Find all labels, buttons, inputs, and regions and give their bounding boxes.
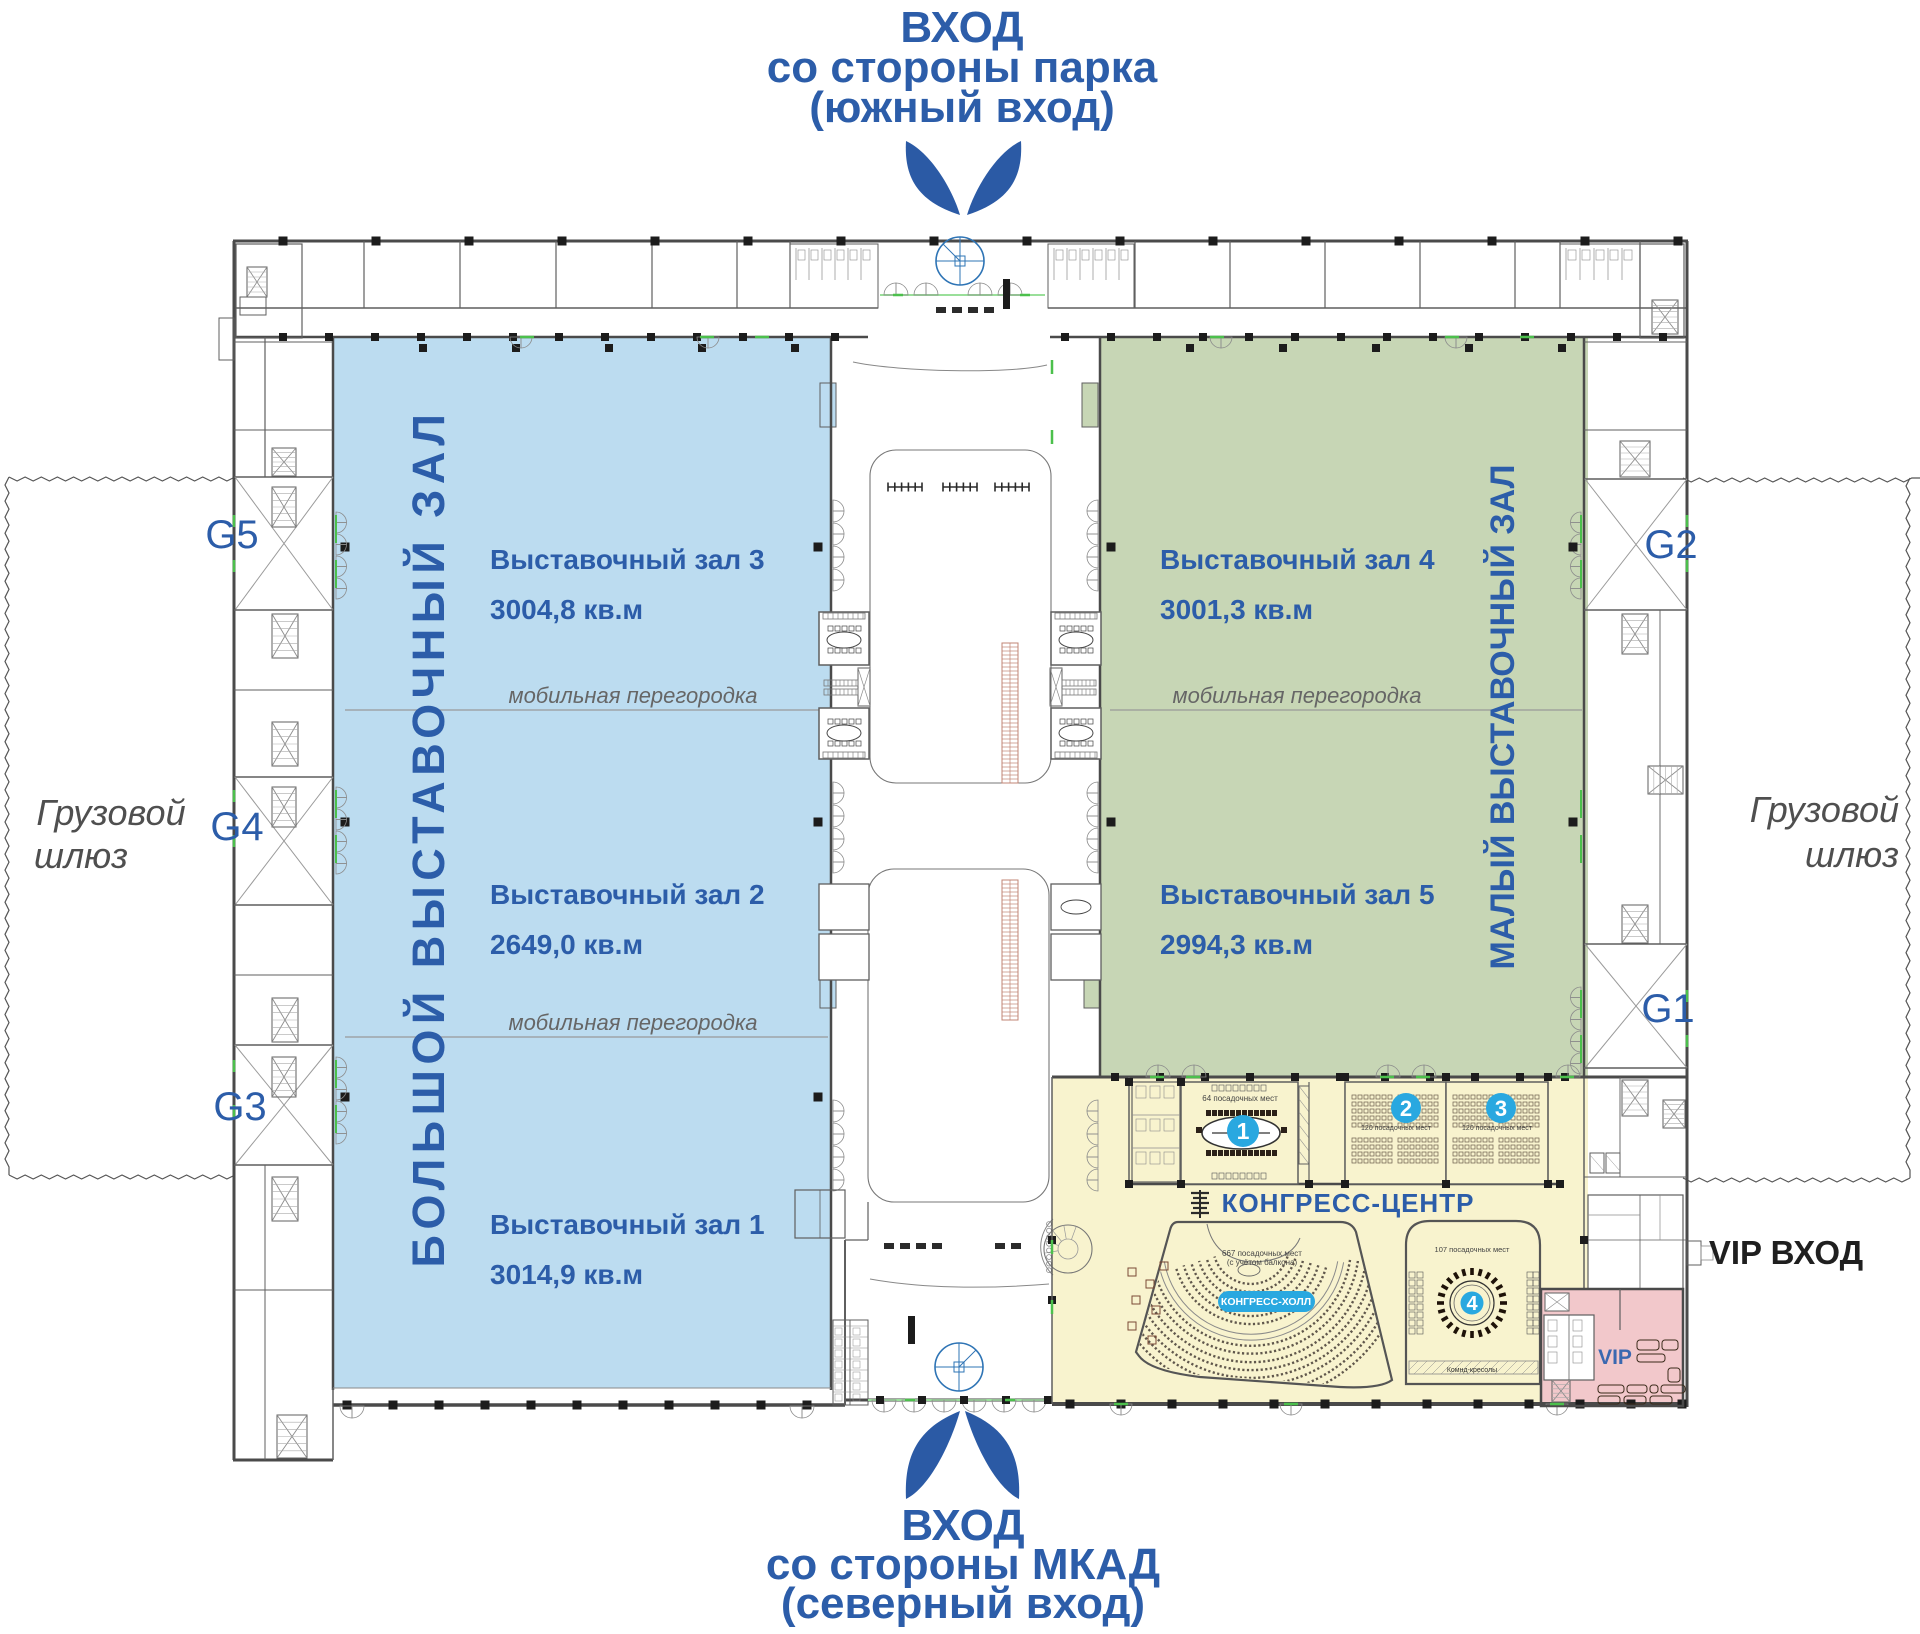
svg-text:КОНГРЕСС-ЦЕНТР: КОНГРЕСС-ЦЕНТР [1222,1188,1475,1218]
svg-text:шлюз: шлюз [34,835,128,876]
svg-text:667 посадочных мест: 667 посадочных мест [1222,1249,1302,1258]
svg-text:3001,3 кв.м: 3001,3 кв.м [1160,594,1313,625]
svg-text:120 посадочных мест: 120 посадочных мест [1462,1125,1533,1132]
svg-text:G5: G5 [205,513,258,557]
svg-text:МАЛЫЙ ВЫСТАВОЧНЫЙ ЗАЛ: МАЛЫЙ ВЫСТАВОЧНЫЙ ЗАЛ [1483,465,1522,970]
svg-text:мобильная перегородка: мобильная перегородка [1172,683,1421,708]
svg-text:3004,8 кв.м: 3004,8 кв.м [490,594,643,625]
svg-text:4: 4 [1466,1293,1478,1315]
svg-text:3014,9 кв.м: 3014,9 кв.м [490,1259,643,1290]
svg-text:(южный вход): (южный вход) [809,83,1115,132]
svg-text:БОЛЬШОЙ ВЫСТАВОЧНЫЙ ЗАЛ: БОЛЬШОЙ ВЫСТАВОЧНЫЙ ЗАЛ [403,408,454,1267]
svg-text:Выставочный зал 3: Выставочный зал 3 [490,544,765,575]
svg-text:107 посадочных мест: 107 посадочных мест [1435,1245,1510,1254]
svg-text:VIP: VIP [1598,1346,1632,1369]
svg-text:Выставочный зал 2: Выставочный зал 2 [490,879,765,910]
svg-text:Выставочный зал 4: Выставочный зал 4 [1160,544,1435,575]
svg-text:мобильная перегородка: мобильная перегородка [508,1010,757,1035]
svg-text:1: 1 [1237,1118,1250,1144]
svg-text:G4: G4 [210,805,263,849]
svg-text:G1: G1 [1641,987,1694,1031]
svg-text:Выставочный зал 5: Выставочный зал 5 [1160,879,1435,910]
svg-text:(северный вход): (северный вход) [781,1579,1145,1628]
svg-text:2: 2 [1400,1096,1412,1121]
svg-text:120 посадочных мест: 120 посадочных мест [1361,1125,1432,1132]
svg-text:Комнд-кресолы: Комнд-кресолы [1447,1367,1497,1374]
svg-text:шлюз: шлюз [1805,834,1899,875]
svg-text:(с учётом балкона): (с учётом балкона) [1227,1258,1298,1267]
svg-text:3: 3 [1495,1096,1507,1121]
svg-text:Выставочный зал 1: Выставочный зал 1 [490,1209,765,1240]
svg-text:2649,0 кв.м: 2649,0 кв.м [490,929,643,960]
svg-text:Грузовой: Грузовой [1750,789,1899,830]
svg-text:G2: G2 [1644,523,1697,567]
svg-text:КОНГРЕСС-ХОЛЛ: КОНГРЕСС-ХОЛЛ [1221,1296,1311,1308]
svg-text:2994,3 кв.м: 2994,3 кв.м [1160,929,1313,960]
svg-text:64 посадочных мест: 64 посадочных мест [1202,1094,1278,1103]
svg-text:G3: G3 [213,1085,266,1129]
svg-text:Грузовой: Грузовой [36,792,185,833]
svg-text:мобильная перегородка: мобильная перегородка [508,683,757,708]
svg-text:VIP ВХОД: VIP ВХОД [1709,1234,1863,1271]
